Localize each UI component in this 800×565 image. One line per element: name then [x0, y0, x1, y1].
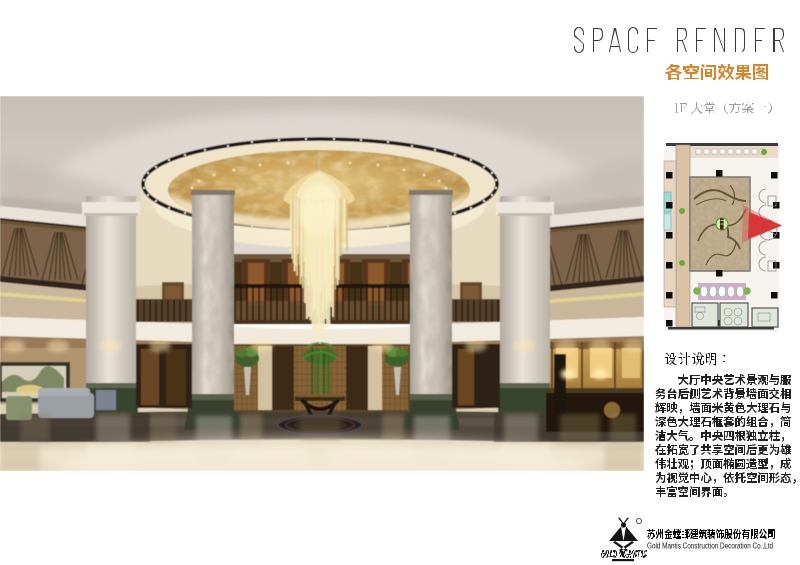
- svg-text:Gold Mantis Construction Decor: Gold Mantis Construction Decoration Co.,…: [647, 541, 773, 551]
